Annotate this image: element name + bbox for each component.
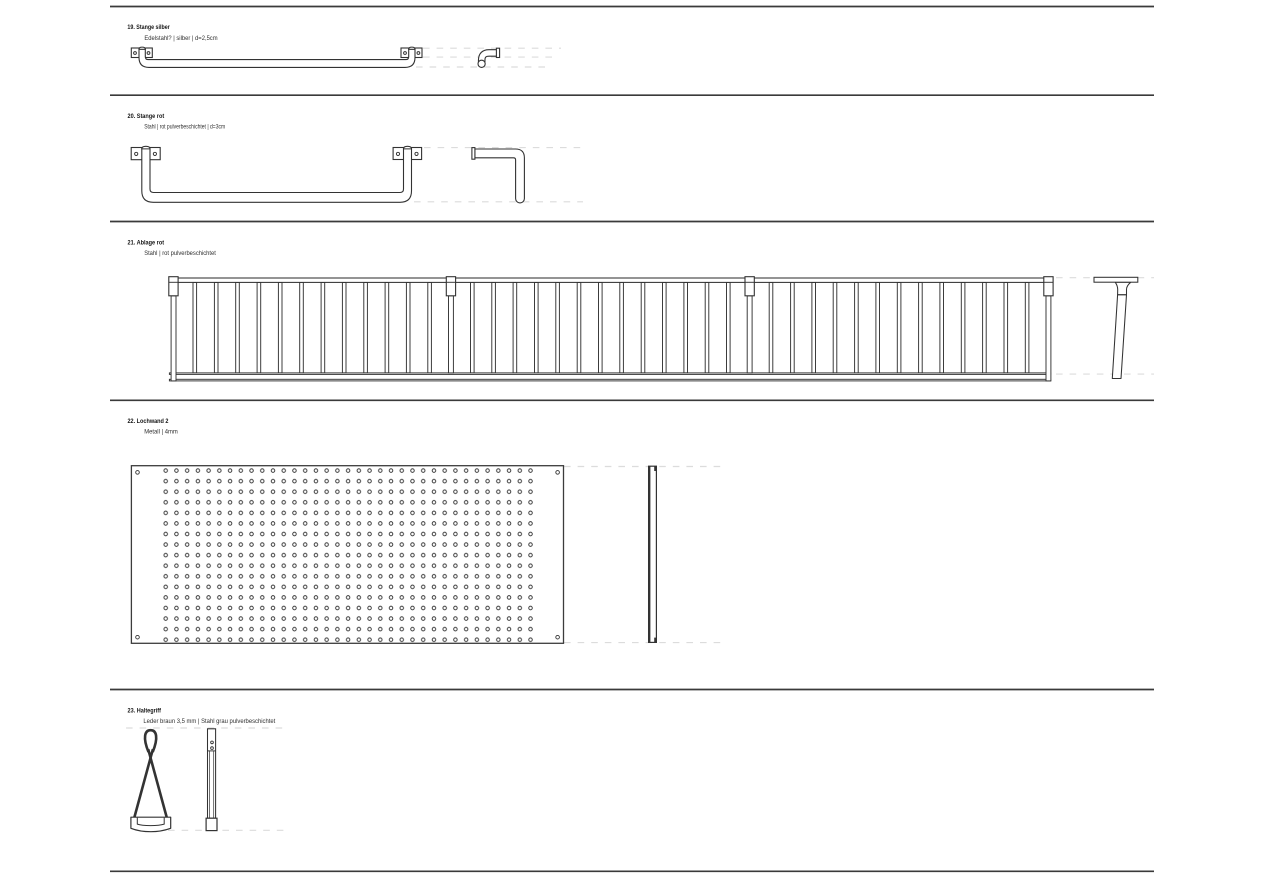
svg-text:Leder braun 3,5 mm | Stahl gra: Leder braun 3,5 mm | Stahl grau pulverbe…: [143, 718, 275, 725]
svg-text:19. Stange silber: 19. Stange silber: [127, 24, 170, 31]
svg-text:Stahl | rot pulverbeschichtet: Stahl | rot pulverbeschichtet: [144, 250, 216, 257]
svg-text:Edelstahl? | silber | d=2,5cm: Edelstahl? | silber | d=2,5cm: [144, 35, 217, 42]
svg-text:Stahl | rot pulverbeschichtet: Stahl | rot pulverbeschichtet | d=3cm: [144, 124, 225, 131]
svg-text:20. Stange rot: 20. Stange rot: [128, 113, 165, 120]
svg-text:Metall | 4mm: Metall | 4mm: [144, 428, 178, 435]
svg-text:23. Haltegriff: 23. Haltegriff: [128, 708, 162, 715]
svg-text:22. Lochwand 2: 22. Lochwand 2: [128, 418, 169, 425]
svg-text:21. Ablage rot: 21. Ablage rot: [128, 239, 165, 246]
